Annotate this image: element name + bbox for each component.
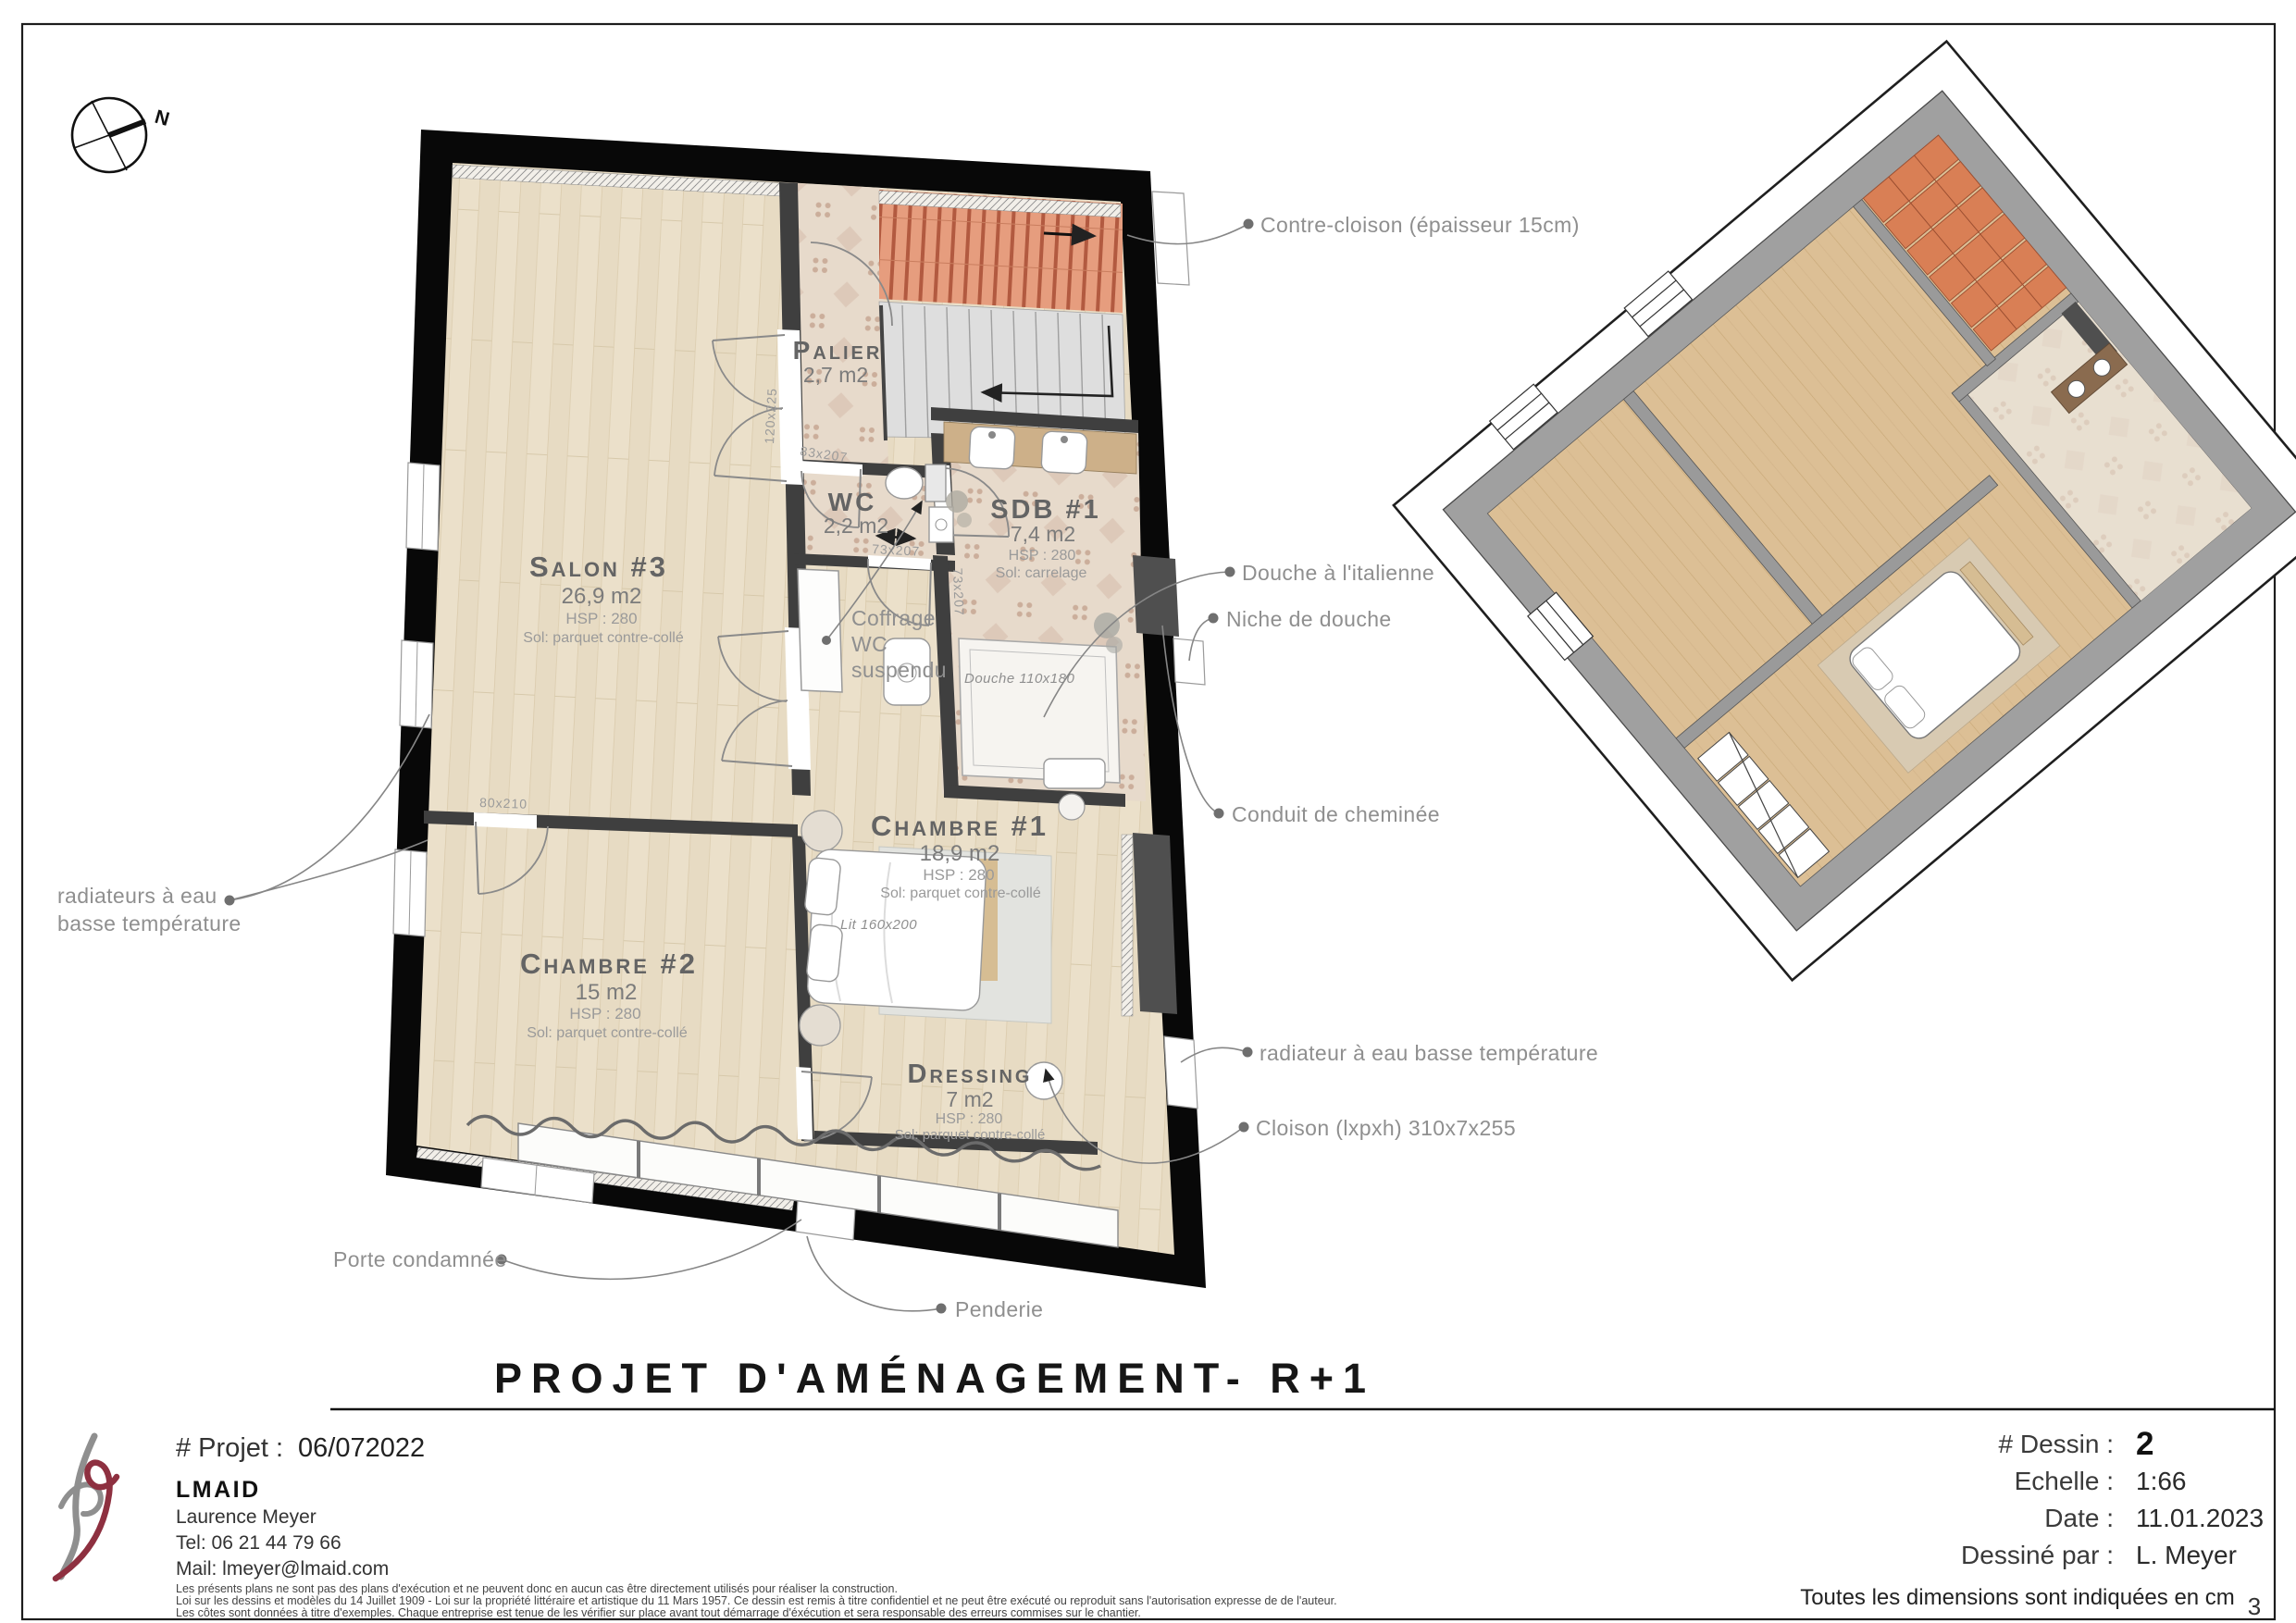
- project-value: 06/072022: [298, 1433, 425, 1463]
- wc-name: WC: [828, 488, 877, 516]
- sdb-sol: Sol: carrelage: [996, 565, 1087, 581]
- chambre2-name: Chambre #2: [520, 948, 698, 980]
- axonometric-3d-view: [1392, 39, 2296, 980]
- echelle-value: 1:66: [2136, 1467, 2187, 1495]
- date-label: Date :: [2044, 1504, 2114, 1532]
- annotation-coffrage-1: Coffrage: [851, 606, 936, 630]
- pillow-bottom-icon: [806, 923, 843, 982]
- dressing-hsp: HSP : 280: [936, 1111, 1003, 1127]
- annotation-coffrage-2: WC: [851, 632, 887, 656]
- dim-door-salon: 120x225: [762, 388, 779, 444]
- desk: [1044, 759, 1105, 788]
- annotation-radiateurs-1: radiateurs à eau: [57, 884, 217, 908]
- author-name: Laurence Meyer: [176, 1506, 316, 1528]
- dessine-par-label: Dessiné par :: [1961, 1541, 2114, 1569]
- legal-line-2: Loi sur les dessins et modèles du 14 Jui…: [176, 1594, 1337, 1607]
- chambre1-area: 18,9 m2: [920, 841, 1000, 866]
- sdb-name: SDB #1: [990, 495, 1101, 525]
- salon-area: 26,9 m2: [562, 584, 642, 609]
- legal-line-3: Les côtes sont données à titre d'exemple…: [176, 1606, 1141, 1619]
- toilet-icon: [886, 467, 923, 499]
- bed-dim-label: Lit 160x200: [840, 917, 917, 933]
- compass-north-icon: N: [72, 98, 172, 172]
- compass-north-label: N: [153, 106, 172, 130]
- plant-icon: [946, 490, 968, 513]
- annotation-conduit-cheminee: Conduit de cheminée: [1232, 802, 1440, 826]
- dim-door-chambre2: 80x210: [479, 795, 527, 811]
- pillow-top-icon: [804, 857, 841, 915]
- dessin-value: 2: [2136, 1426, 2153, 1462]
- annotation-radiateur: radiateur à eau basse température: [1260, 1041, 1598, 1065]
- door-gap-chambre1: [796, 1067, 813, 1140]
- annotation-contre-cloison: Contre-cloison (épaisseur 15cm): [1260, 213, 1580, 237]
- email: Mail: lmeyer@lmaid.com: [176, 1558, 389, 1580]
- chambre1-name: Chambre #1: [871, 810, 1049, 842]
- chambre2-sol: Sol: parquet contre-collé: [527, 1025, 688, 1041]
- bedside-table-top: [801, 811, 842, 851]
- date-value: 11.01.2023: [2136, 1504, 2264, 1532]
- sdb-area: 7,4 m2: [1011, 522, 1075, 546]
- palier-area: 2,7 m2: [803, 363, 868, 387]
- plant2-icon: [1094, 613, 1120, 638]
- dressing-area: 7 m2: [946, 1087, 993, 1111]
- salon-name: Salon #3: [529, 551, 668, 583]
- dessin-label: # Dessin :: [1999, 1430, 2115, 1458]
- chimney-conduit-block: [1133, 555, 1179, 637]
- toilet-tank: [925, 465, 946, 502]
- annotation-porte-condamnee: Porte condamnée: [333, 1247, 507, 1271]
- dressing-sol: Sol: parquet contre-collé: [895, 1127, 1046, 1143]
- annotation-douche-italienne: Douche à l'italienne: [1242, 561, 1434, 585]
- echelle-label: Echelle :: [2015, 1467, 2114, 1495]
- dim-door-sdb: 73x207: [950, 568, 967, 616]
- drawing-sheet: N: [0, 0, 2296, 1623]
- plan-canvas: N: [0, 0, 2296, 1623]
- chambre1-hsp: HSP : 280: [923, 866, 994, 884]
- lmaid-logo: [56, 1436, 117, 1579]
- floor-plan: Salon #3 26,9 m2 HSP : 280 Sol: parquet …: [386, 130, 1206, 1288]
- annotation-penderie: Penderie: [955, 1297, 1043, 1321]
- wc-area: 2,2 m2: [824, 514, 888, 538]
- door-gap-chambre2: [474, 812, 537, 829]
- wc-sink: [929, 507, 953, 542]
- salon-sol: Sol: parquet contre-collé: [523, 630, 684, 646]
- annotation-radiateurs-2: basse température: [57, 911, 242, 935]
- palier-name: Palier: [793, 336, 883, 365]
- annotation-coffrage-3: suspendu: [851, 658, 947, 682]
- niche-hatch: [1122, 835, 1133, 1016]
- chambre1-sol: Sol: parquet contre-collé: [880, 886, 1041, 901]
- chambre2-hsp: HSP : 280: [569, 1005, 640, 1022]
- legal-line-1: Les présents plans ne sont pas des plans…: [176, 1582, 898, 1595]
- dessine-par-value: L. Meyer: [2136, 1541, 2237, 1569]
- salon-hsp: HSP : 280: [565, 610, 637, 627]
- chambre2-area: 15 m2: [576, 980, 638, 1005]
- page-number: 3: [2248, 1592, 2261, 1620]
- title-block: # Projet : 06/072022 LMAID Laurence Meye…: [56, 1426, 2264, 1620]
- phone: Tel: 06 21 44 79 66: [176, 1532, 341, 1554]
- chair-icon: [1059, 794, 1085, 820]
- shower-dim-label: Douche 110x180: [964, 671, 1074, 687]
- radiator-niche-block: [1133, 833, 1177, 1014]
- annotation-cloison: Cloison (lxpxh) 310x7x255: [1256, 1116, 1516, 1140]
- project-label: # Projet :: [176, 1433, 283, 1463]
- coffrage-unit: [798, 569, 842, 692]
- bedside-table-bottom: [800, 1005, 840, 1046]
- company-name: LMAID: [176, 1477, 261, 1503]
- page-title: Projet d'aménagement- R+1: [494, 1355, 1375, 1402]
- dimensions-note: Toutes les dimensions sont indiquées en …: [1800, 1585, 2235, 1610]
- sdb-hsp: HSP : 280: [1009, 548, 1076, 564]
- dressing-name: Dressing: [908, 1059, 1033, 1089]
- annotation-niche-douche: Niche de douche: [1226, 607, 1392, 631]
